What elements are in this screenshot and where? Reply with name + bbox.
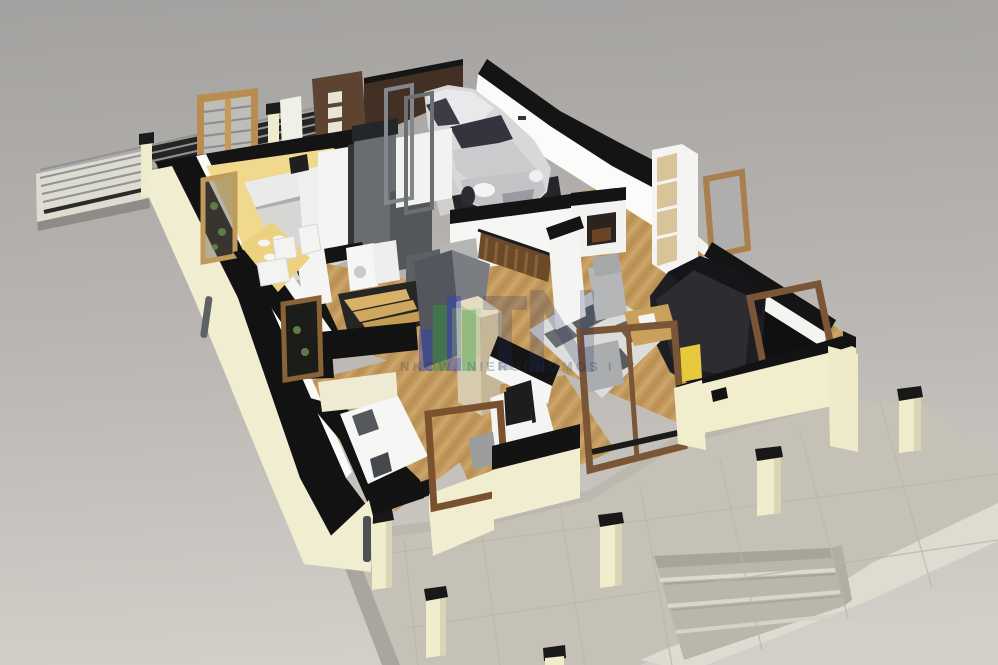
svg-text:NKOW, NIERUCHOMOS I: NKOW, NIERUCHOMOS I <box>400 359 615 374</box>
